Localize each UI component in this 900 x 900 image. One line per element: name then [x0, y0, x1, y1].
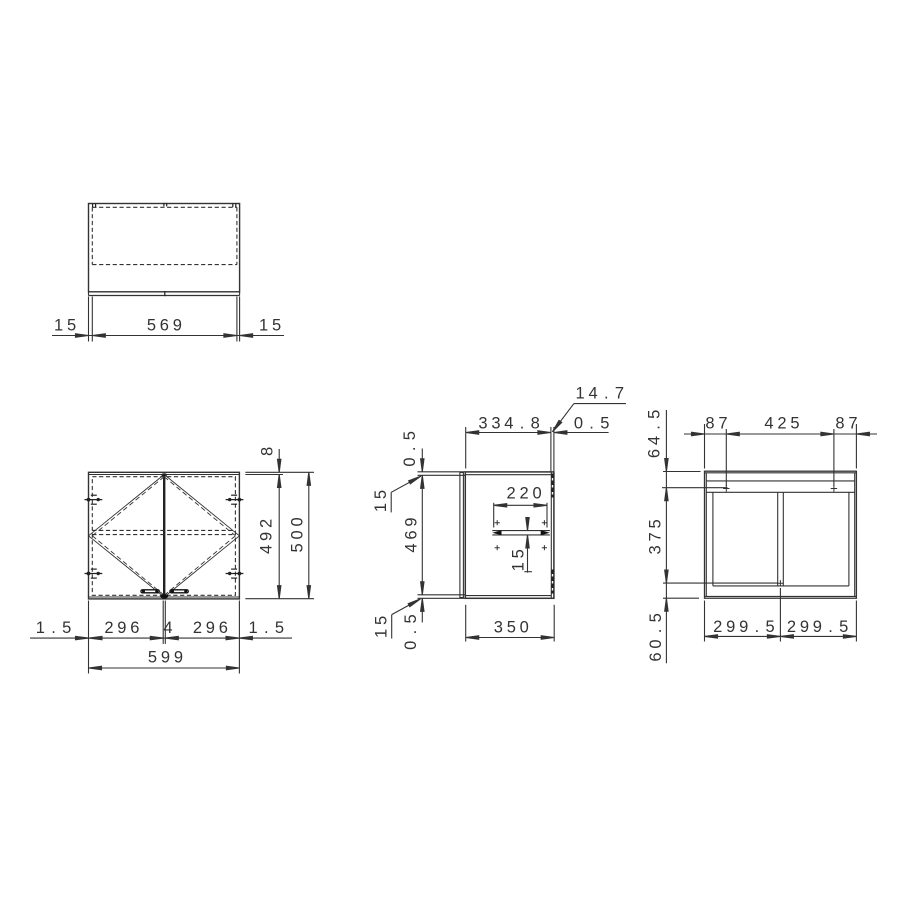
svg-text:0.5: 0.5 — [401, 427, 419, 466]
svg-text:0.5: 0.5 — [402, 611, 420, 650]
svg-text:569: 569 — [147, 317, 186, 335]
svg-text:15: 15 — [510, 545, 528, 571]
svg-text:87: 87 — [835, 415, 861, 433]
svg-text:8: 8 — [259, 443, 277, 456]
svg-text:296: 296 — [104, 619, 143, 637]
svg-text:4: 4 — [163, 619, 176, 637]
svg-text:15: 15 — [259, 317, 285, 335]
svg-text:500: 500 — [289, 514, 307, 553]
svg-text:350: 350 — [494, 619, 533, 637]
svg-text:87: 87 — [705, 415, 731, 433]
svg-text:0.5: 0.5 — [574, 415, 613, 433]
svg-text:299.5: 299.5 — [713, 618, 778, 636]
svg-text:60.5: 60.5 — [647, 609, 665, 661]
svg-text:15: 15 — [372, 486, 390, 512]
svg-text:296: 296 — [193, 619, 232, 637]
svg-text:425: 425 — [764, 415, 803, 433]
svg-text:220: 220 — [507, 485, 546, 503]
svg-text:1.5: 1.5 — [36, 619, 75, 637]
svg-text:15: 15 — [54, 317, 80, 335]
svg-text:64.5: 64.5 — [646, 406, 664, 458]
svg-text:469: 469 — [402, 514, 420, 553]
svg-text:375: 375 — [647, 516, 665, 555]
svg-text:492: 492 — [258, 515, 276, 554]
svg-text:334.8: 334.8 — [478, 415, 543, 433]
svg-text:14.7: 14.7 — [576, 384, 628, 402]
svg-text:1.5: 1.5 — [249, 619, 288, 637]
svg-text:15: 15 — [372, 612, 390, 638]
svg-text:599: 599 — [148, 648, 187, 666]
svg-text:299.5: 299.5 — [787, 618, 852, 636]
